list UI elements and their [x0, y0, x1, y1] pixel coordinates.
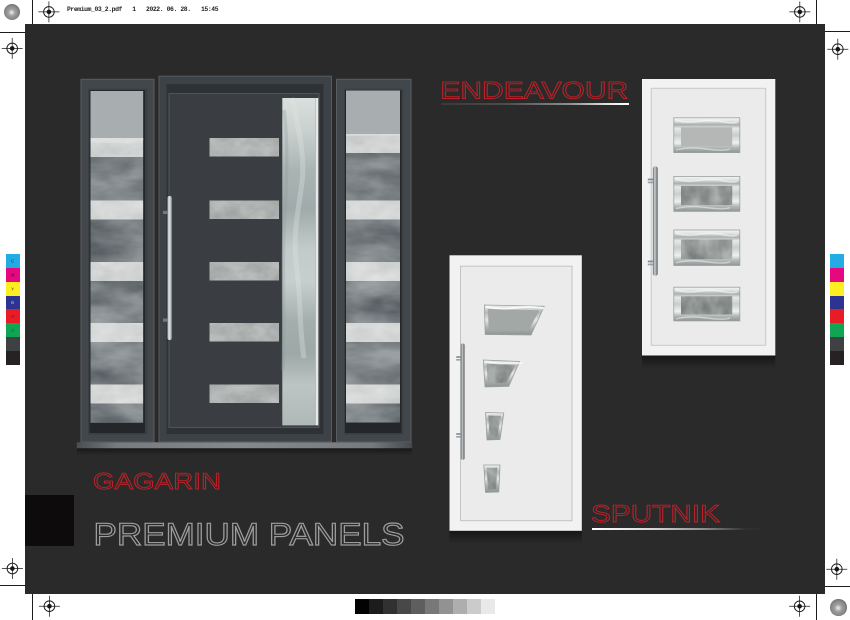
- svg-text:SPUTNIK: SPUTNIK: [591, 501, 721, 528]
- svg-text:R: R: [11, 314, 14, 319]
- svg-text:Y: Y: [11, 286, 14, 291]
- svg-text:C: C: [11, 258, 14, 263]
- svg-text:G: G: [11, 328, 14, 333]
- svg-text:GAGARIN: GAGARIN: [93, 468, 221, 494]
- svg-text:ENDEAVOUR: ENDEAVOUR: [440, 77, 628, 104]
- svg-text:PREMIUM PANELS: PREMIUM PANELS: [94, 516, 405, 552]
- svg-text:M: M: [11, 272, 15, 277]
- svg-text:B: B: [11, 300, 14, 305]
